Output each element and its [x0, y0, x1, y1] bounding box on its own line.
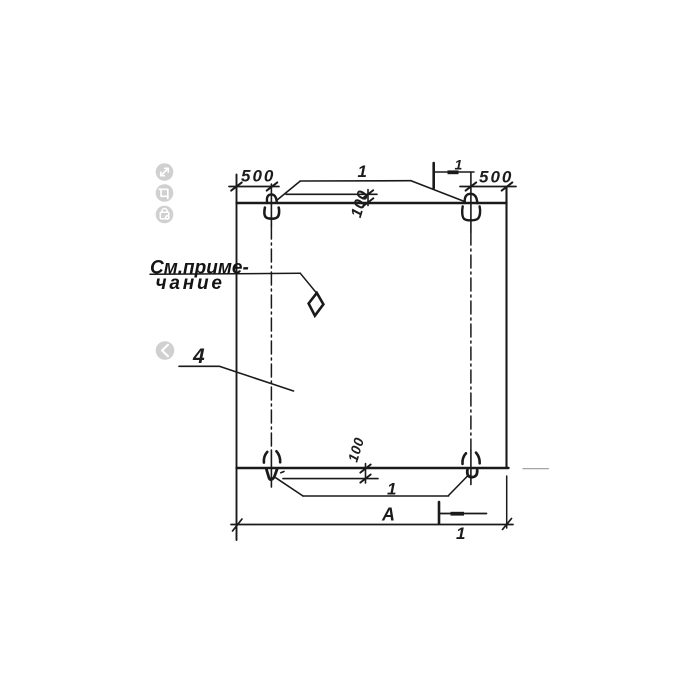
svg-text:чание: чание [156, 273, 225, 294]
svg-text:1: 1 [358, 162, 367, 181]
svg-text:1: 1 [456, 524, 465, 543]
svg-text:100: 100 [345, 435, 368, 463]
svg-text:1: 1 [455, 157, 463, 173]
svg-text:500: 500 [479, 168, 513, 187]
svg-text:1: 1 [387, 480, 396, 499]
svg-text:А: А [381, 505, 395, 525]
svg-text:4: 4 [192, 345, 205, 368]
svg-text:100: 100 [348, 189, 372, 220]
svg-text:500: 500 [241, 167, 275, 186]
